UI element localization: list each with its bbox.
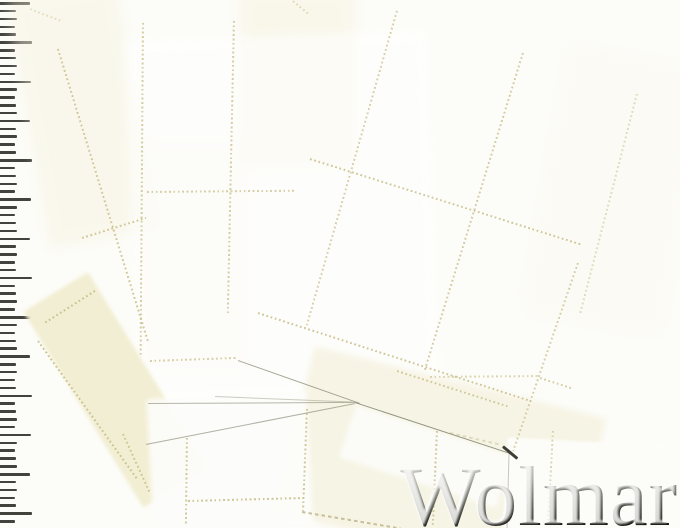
tint-right-sheet [523,45,680,335]
ruler-minor-tick [0,481,16,484]
ruler-minor-tick [0,363,16,366]
ruler-minor-tick [0,128,16,131]
ruler-minor-tick [0,143,15,146]
ruler-minor-tick [0,214,15,217]
ruler-minor-tick [0,88,17,91]
ruler-minor-tick [0,418,17,421]
ruler-minor-tick [0,206,17,209]
ruler-minor-tick [0,402,15,405]
ruler-minor-tick [0,426,15,429]
ruler-major-tick [0,434,31,437]
perf-sheet-c-row-3 [540,377,572,389]
ruler-minor-tick [0,253,17,256]
ruler-minor-tick [0,190,15,193]
center-white-sheet [124,30,442,405]
ruler-minor-tick [0,497,15,500]
ruler-major-tick [0,512,32,515]
ruler-minor-tick [0,230,17,233]
ruler-minor-tick [0,65,17,68]
ruler-minor-tick [0,347,17,350]
ruler-minor-tick [0,175,16,178]
ruler-major-tick [0,238,30,241]
wolmar-watermark-text: Wolmar [400,450,678,528]
bottom-middle-white-sheet [147,391,314,528]
ruler-minor-tick [0,489,17,492]
ruler-minor-tick [0,410,16,413]
ruler-major-tick [0,473,30,476]
ruler-minor-tick [0,308,15,311]
ruler-minor-tick [0,387,16,390]
ruler-major-tick [0,395,32,398]
perf-sheet-f-row-2 [430,375,538,378]
ruler-minor-tick [0,167,15,170]
wolmar-watermark: Wolmar [400,455,678,528]
ruler-major-tick [0,198,31,201]
ruler-minor-tick [0,465,17,468]
ruler-minor-tick [0,112,17,115]
ruler-major-tick [0,277,32,280]
ruler-minor-tick [0,73,15,76]
stamp-sheets-scan: Wolmar [0,0,680,528]
ruler-minor-tick [0,104,16,107]
ruler-minor-tick [0,457,16,460]
ruler-minor-tick [0,269,16,272]
ruler-minor-tick [0,285,15,288]
ruler-minor-tick [0,49,15,52]
ruler-minor-tick [0,245,16,248]
ruler-minor-tick [0,371,17,374]
ruler-minor-tick [0,183,17,186]
ruler-minor-tick [0,292,16,295]
ruler-minor-tick [0,324,17,327]
ruler-minor-tick [0,135,17,138]
ruler-minor-tick [0,340,16,343]
ruler-minor-tick [0,96,15,99]
ruler-minor-tick [0,300,17,303]
ruler-major-tick [0,120,30,123]
ruler-minor-tick [0,151,16,154]
ruler-minor-tick [0,379,15,382]
ruler-minor-tick [0,261,15,264]
ruler-major-tick [0,355,30,358]
ruler-minor-tick [0,57,16,60]
ruler-minor-tick [0,332,15,335]
ruler-minor-tick [0,520,15,523]
ruler-minor-tick [0,504,16,507]
ruler-minor-tick [0,449,15,452]
ruler-minor-tick [0,442,17,445]
ruler-major-tick [0,159,32,162]
ruler-minor-tick [0,222,16,225]
